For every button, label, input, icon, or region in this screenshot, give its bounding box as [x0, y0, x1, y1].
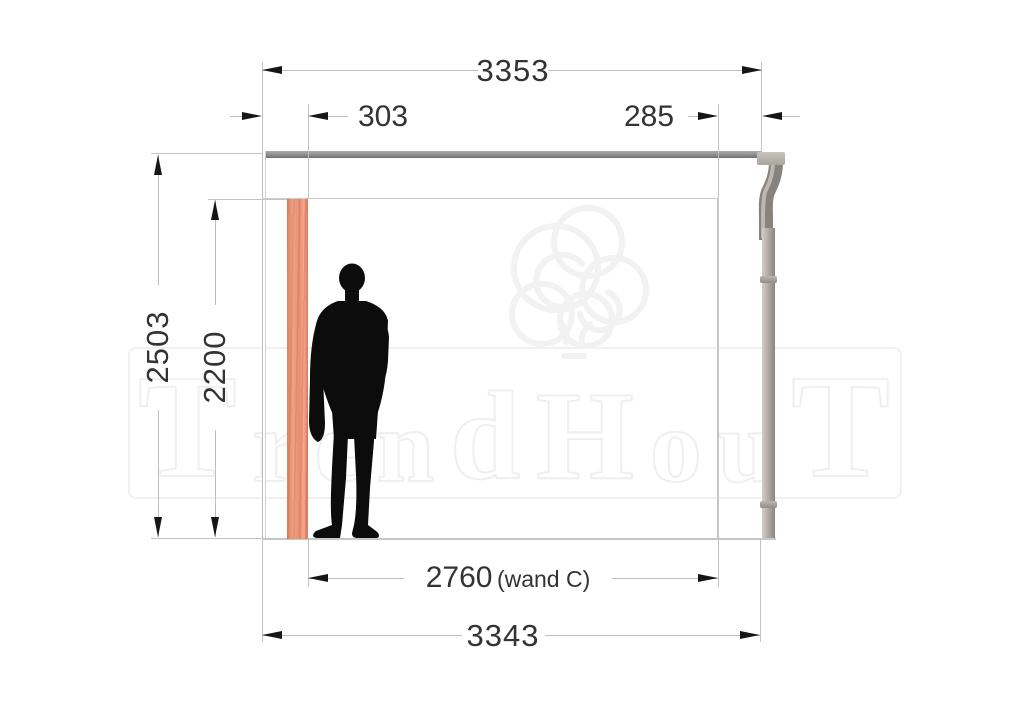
arrowhead — [262, 631, 282, 639]
dimension-suffix: (wand C) — [497, 566, 590, 592]
dimension-label: 2200 — [197, 287, 233, 447]
extension-line — [262, 539, 263, 642]
arrowhead — [308, 112, 328, 120]
dimension-line — [780, 116, 800, 117]
extension-line — [208, 199, 287, 200]
wall-left-edge — [262, 151, 266, 539]
extension-line — [151, 538, 262, 539]
arrowhead — [762, 112, 782, 120]
drawing-canvas: { "watermark": { "brand": "TrendHout", "… — [0, 0, 1024, 704]
watermark-letter: T — [791, 359, 890, 495]
arrowhead — [742, 66, 762, 74]
watermark-letter: o — [650, 399, 702, 495]
dimension-label: 3353 — [423, 53, 603, 89]
downpipe-collar — [760, 501, 777, 508]
arrowhead — [211, 517, 219, 537]
arrowhead — [154, 155, 162, 175]
extension-line — [718, 104, 719, 198]
arrowhead — [211, 200, 219, 220]
wall-right-edge — [717, 198, 719, 539]
roof-beam — [262, 151, 761, 158]
extension-line — [761, 62, 762, 152]
dimension-label: 303 — [344, 100, 422, 134]
dimension-label: 2503 — [140, 267, 176, 427]
extension-line — [151, 153, 262, 154]
arrowhead — [154, 517, 162, 537]
cloud-tree-logo-icon — [490, 196, 650, 360]
arrowhead — [740, 631, 760, 639]
arrowhead — [242, 112, 262, 120]
gutter-outlet — [757, 152, 785, 165]
beam-underside-line — [262, 198, 718, 199]
downpipe — [762, 228, 775, 538]
wood-post — [287, 199, 308, 539]
extension-line — [718, 539, 719, 587]
watermark-letter: H — [536, 379, 634, 495]
watermark-wordmark: T r e n d H o u T — [128, 342, 900, 495]
arrowhead — [698, 574, 718, 582]
person-silhouette — [308, 263, 400, 539]
dimension-label: 2760 (wand C) — [404, 561, 612, 595]
arrowhead — [308, 574, 328, 582]
dimension-label: 3343 — [418, 618, 588, 654]
downpipe-collar — [760, 276, 777, 283]
arrowhead — [698, 112, 718, 120]
watermark-letter: d — [450, 379, 520, 495]
dimension-label: 285 — [610, 100, 688, 134]
extension-line — [262, 62, 263, 151]
extension-line — [760, 539, 761, 642]
dimension-value: 2760 — [426, 561, 493, 594]
arrowhead — [262, 66, 282, 74]
